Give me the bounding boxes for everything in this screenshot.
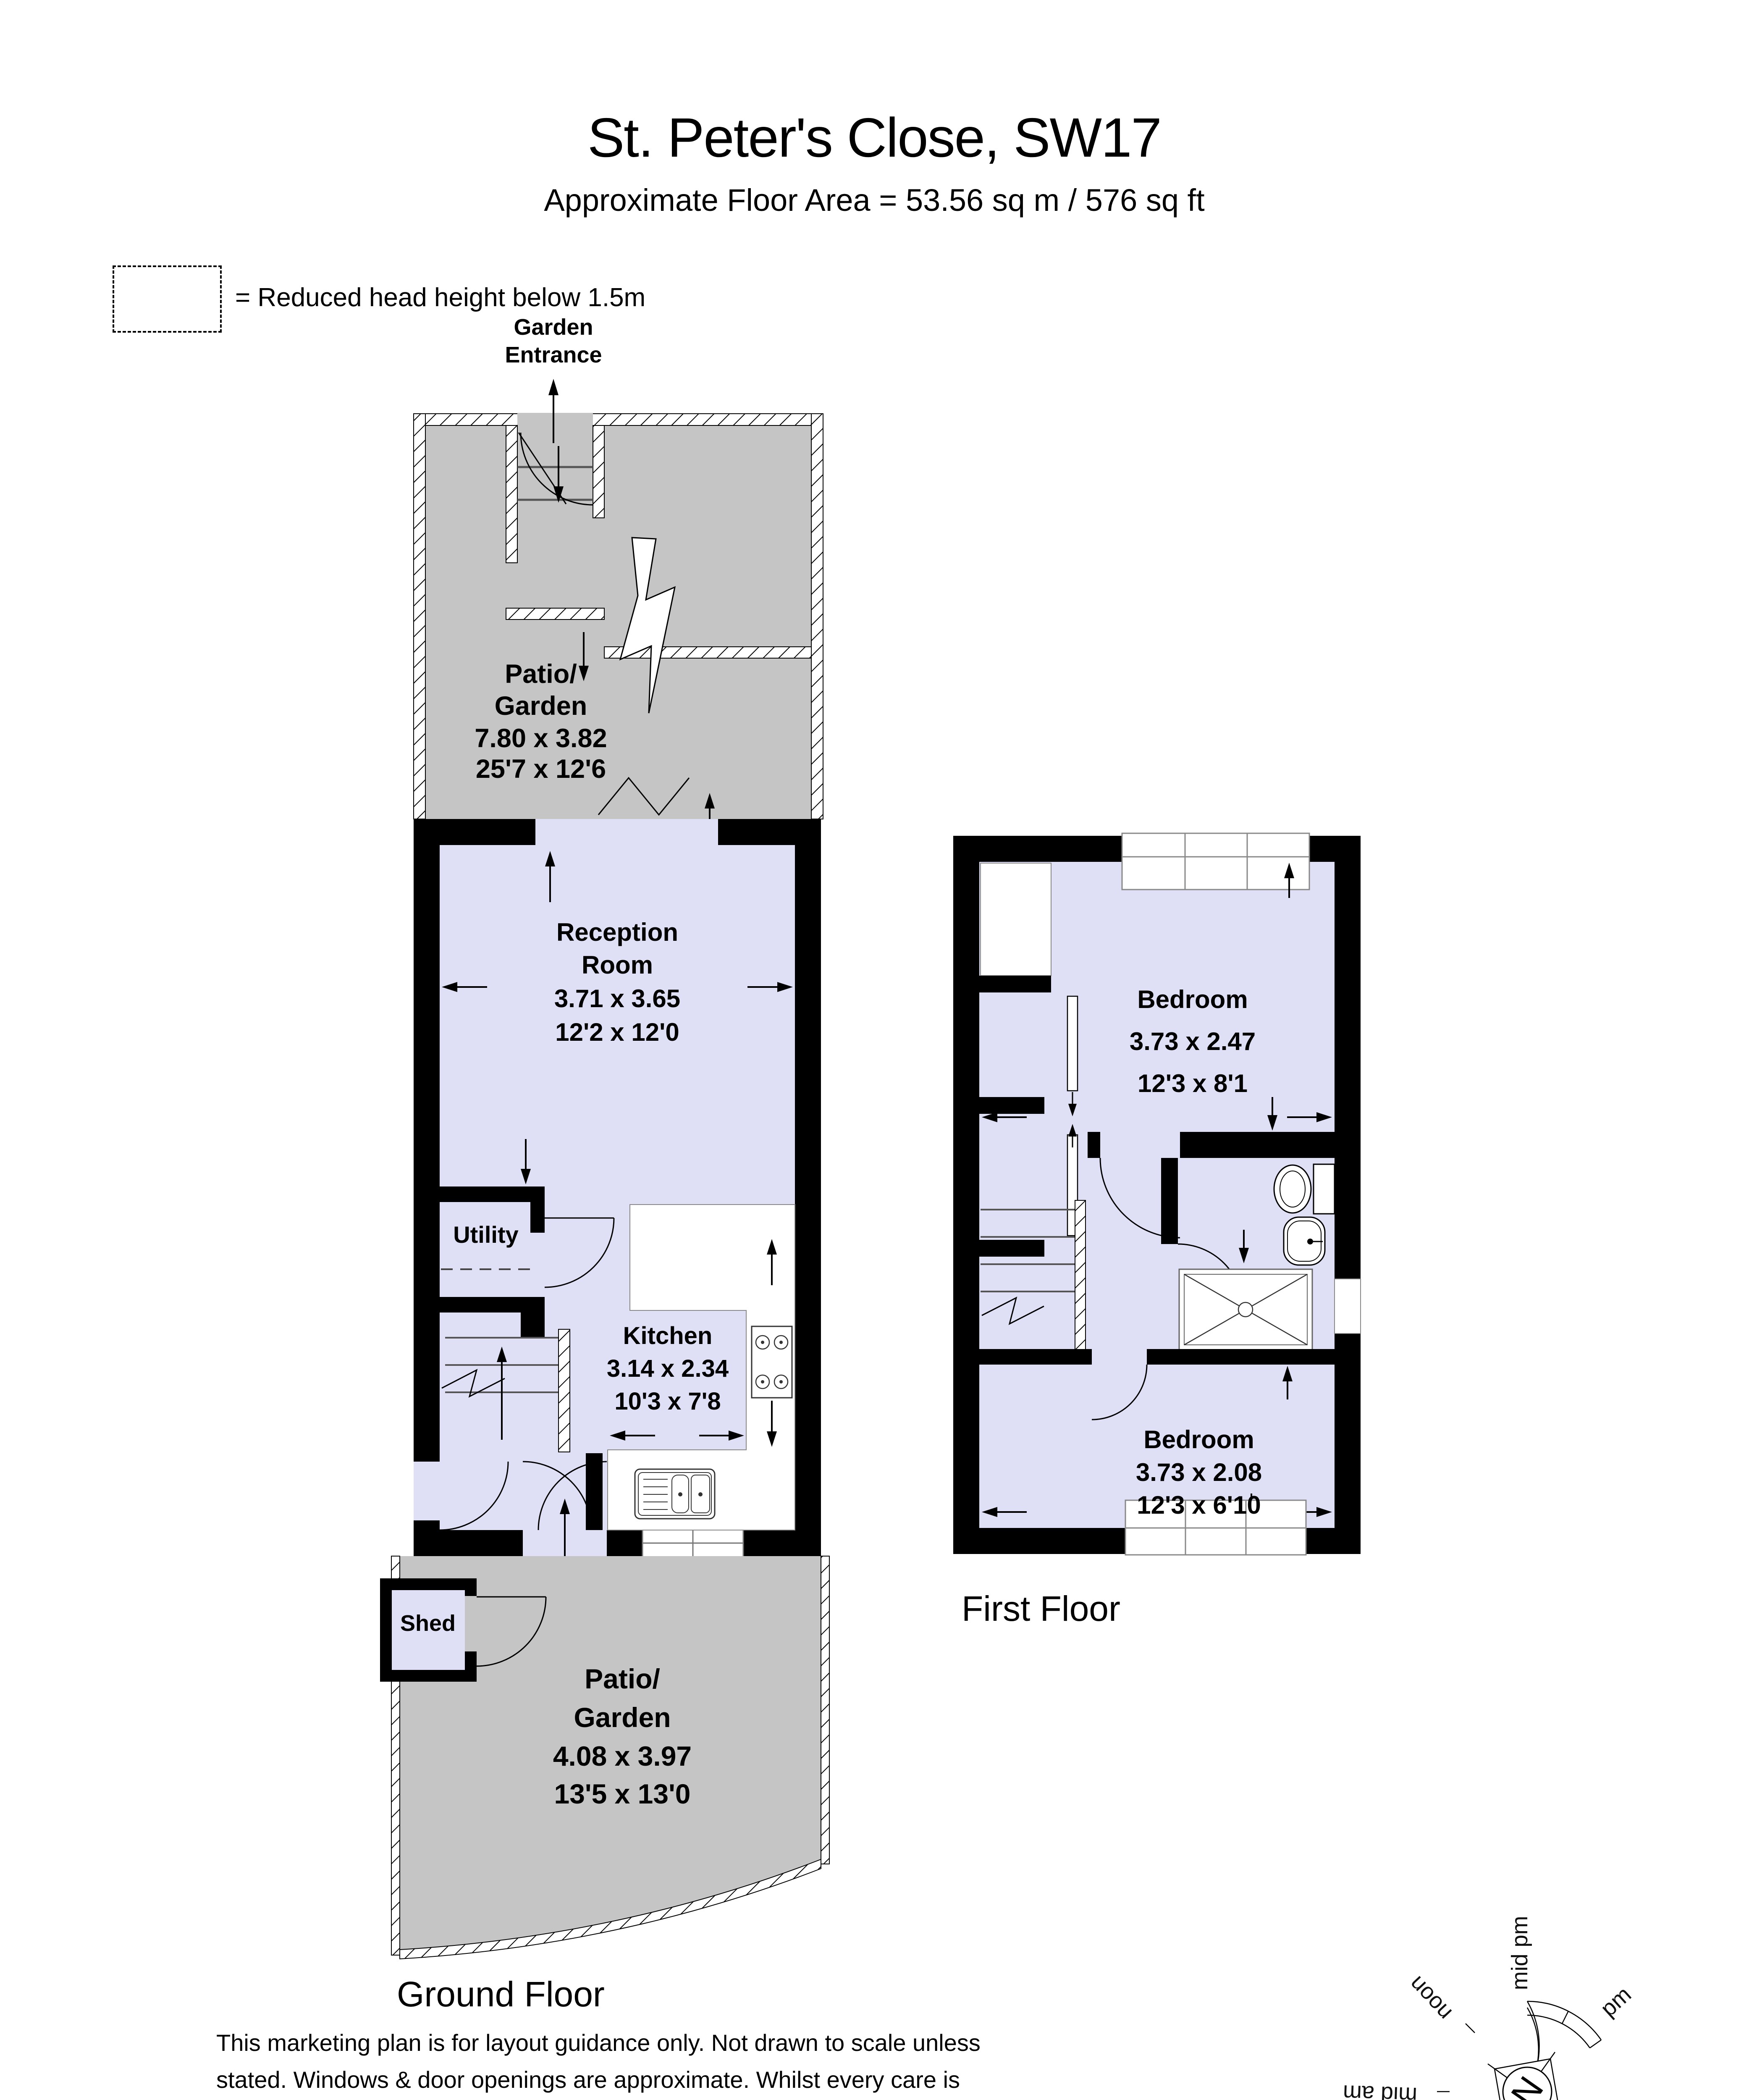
- bathroom-window: [1335, 1279, 1361, 1333]
- legend-swatch: [113, 265, 222, 333]
- compass-label-mid-pm: mid pm: [1507, 1916, 1532, 1990]
- compass-label-noon: noon: [1404, 1971, 1457, 2026]
- garden-entrance-opening: [517, 413, 593, 426]
- reception-label-2: Room: [582, 953, 653, 978]
- ground-floor-label: Ground Floor: [397, 1977, 605, 2012]
- patio-top-label-2: Garden: [495, 693, 587, 719]
- patio-bottom-dim-imperial: 13'5 x 13'0: [554, 1780, 690, 1808]
- garden-entrance-label-2: Entrance: [505, 344, 602, 366]
- side-door-opening: [414, 1462, 440, 1520]
- compass-labels: am mid am noon mid pm pm: [1343, 1916, 1636, 2100]
- patio-bottom-label-1: Patio/: [585, 1665, 660, 1693]
- page-title: St. Peter's Close, SW17: [587, 110, 1161, 165]
- bedroom1-dim-metric: 3.73 x 2.47: [1130, 1029, 1256, 1054]
- bedroom2-dim-imperial: 12'3 x 6'10: [1137, 1493, 1261, 1518]
- garden-entrance-label-1: Garden: [514, 316, 593, 339]
- reception-label-1: Reception: [556, 920, 678, 945]
- bedroom1-dim-imperial: 12'3 x 8'1: [1138, 1071, 1248, 1096]
- utility-label: Utility: [453, 1223, 519, 1247]
- floorplan-page: N am mid am noon mid pm pm St. Peter's C…: [0, 0, 1749, 2100]
- reception-dim-imperial: 12'2 x 12'0: [555, 1020, 679, 1045]
- patio-top-dim-metric: 7.80 x 3.82: [475, 725, 607, 752]
- shed-label: Shed: [400, 1612, 456, 1635]
- disclaimer-line-1: This marketing plan is for layout guidan…: [216, 2031, 981, 2055]
- closet: [981, 863, 1051, 976]
- reception-dim-metric: 3.71 x 3.65: [554, 986, 680, 1011]
- floorplan-graphics: N am mid am noon mid pm pm: [0, 0, 1749, 2100]
- first-floor-label: First Floor: [962, 1591, 1120, 1626]
- kitchen-window: [642, 1528, 743, 1559]
- bedroom1-window: [1122, 833, 1309, 890]
- compass-rose: N am mid am noon mid pm pm: [1343, 1916, 1636, 2100]
- hob-icon: [752, 1326, 792, 1398]
- bathroom-wall: [1161, 1158, 1178, 1244]
- compass-label-mid-am: mid am: [1343, 2080, 1418, 2100]
- shower-icon: [1179, 1269, 1312, 1350]
- toilet-icon: [1274, 1164, 1335, 1214]
- kitchen-label: Kitchen: [623, 1324, 713, 1348]
- patio-top-label-1: Patio/: [505, 661, 577, 688]
- patio-bottom-label-2: Garden: [574, 1704, 671, 1731]
- compass-label-pm: pm: [1596, 1982, 1636, 2021]
- legend-label: = Reduced head height below 1.5m: [235, 285, 645, 311]
- kitchen-dim-metric: 3.14 x 2.34: [607, 1357, 729, 1381]
- sink-icon: [635, 1469, 715, 1519]
- page-subtitle: Approximate Floor Area = 53.56 sq m / 57…: [544, 185, 1204, 216]
- patio-door-opening: [535, 819, 718, 845]
- patio-top-dim-imperial: 25'7 x 12'6: [476, 756, 606, 782]
- kitchen-dim-imperial: 10'3 x 7'8: [614, 1389, 721, 1414]
- bedroom2-label: Bedroom: [1143, 1427, 1254, 1452]
- basin-icon: [1284, 1217, 1325, 1265]
- disclaimer-line-2: stated. Windows & door openings are appr…: [216, 2068, 960, 2092]
- patio-bottom-dim-metric: 4.08 x 3.97: [553, 1742, 692, 1770]
- bedroom2-dim-metric: 3.73 x 2.08: [1136, 1460, 1262, 1485]
- bedroom1-label: Bedroom: [1137, 987, 1248, 1012]
- garden-top: [414, 413, 823, 862]
